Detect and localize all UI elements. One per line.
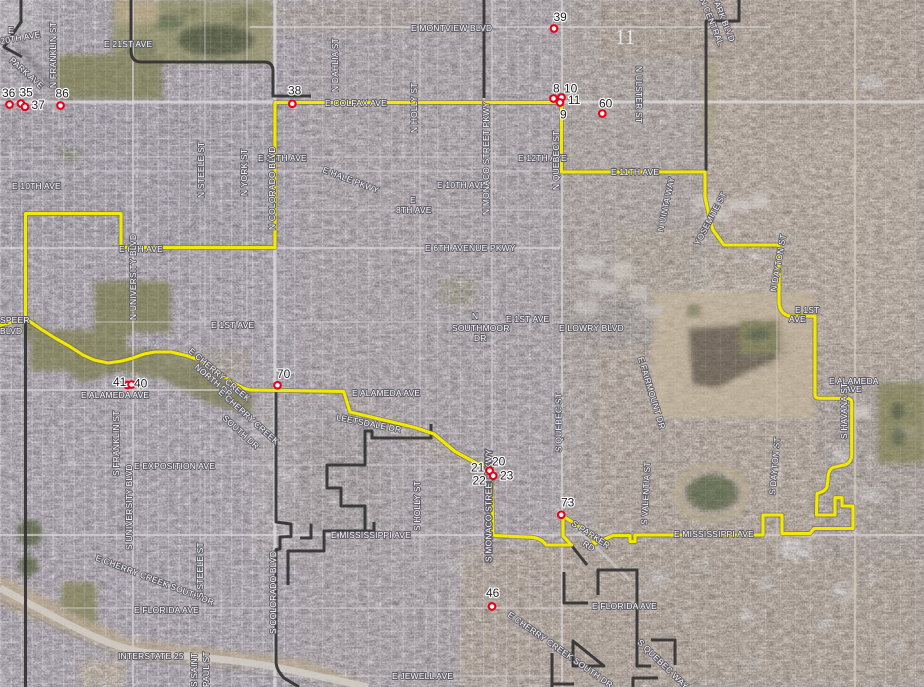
svg-text:E ALAMEDA AVE: E ALAMEDA AVE — [81, 390, 149, 400]
svg-text:73: 73 — [561, 496, 575, 510]
svg-text:AVE: AVE — [789, 314, 806, 324]
svg-text:E 1ST AVE: E 1ST AVE — [211, 320, 255, 330]
svg-text:DR: DR — [474, 333, 487, 343]
svg-text:BLVD: BLVD — [0, 326, 22, 336]
svg-text:N FRANKLIN ST: N FRANKLIN ST — [48, 22, 58, 88]
svg-text:E ALAMEDA AVE: E ALAMEDA AVE — [352, 388, 420, 398]
svg-text:9: 9 — [560, 108, 567, 122]
svg-text:E MONTVIEW BLVD: E MONTVIEW BLVD — [411, 23, 492, 33]
svg-text:86: 86 — [56, 87, 70, 101]
svg-text:E EXPOSITION AVE: E EXPOSITION AVE — [134, 461, 215, 471]
svg-text:70: 70 — [277, 367, 291, 381]
svg-text:S QUEBEC ST: S QUEBEC ST — [554, 393, 564, 452]
svg-text:N QUEBEC ST: N QUEBEC ST — [551, 130, 561, 190]
svg-text:S HAVANA ST: S HAVANA ST — [839, 383, 849, 439]
svg-text:E 12TH AVE: E 12TH AVE — [258, 153, 307, 163]
svg-text:N YORK ST: N YORK ST — [239, 149, 249, 196]
svg-text:E JEWELL AVE: E JEWELL AVE — [392, 671, 453, 681]
svg-text:22: 22 — [473, 474, 487, 488]
svg-text:S HOLLY ST: S HOLLY ST — [412, 481, 422, 531]
svg-text:N DAHLIA ST: N DAHLIA ST — [330, 38, 340, 92]
svg-text:E 1ST AVE: E 1ST AVE — [506, 314, 550, 324]
svg-text:20: 20 — [492, 455, 506, 469]
svg-text:N: N — [472, 311, 478, 321]
svg-text:PAUL ST: PAUL ST — [201, 651, 211, 687]
svg-text:41: 41 — [113, 375, 127, 389]
svg-text:E 6TH AVE: E 6TH AVE — [119, 244, 163, 254]
svg-text:N STEELE ST: N STEELE ST — [196, 142, 206, 198]
svg-text:N UNIVERSITY BLVD: N UNIVERSITY BLVD — [128, 234, 138, 320]
svg-text:46: 46 — [486, 586, 500, 600]
svg-text:23: 23 — [500, 469, 514, 483]
svg-text:E LOWRY BLVD: E LOWRY BLVD — [559, 323, 624, 333]
svg-text:37: 37 — [32, 98, 46, 112]
svg-text:11: 11 — [615, 25, 635, 49]
svg-text:S FRANKLIN ST: S FRANKLIN ST — [111, 410, 121, 476]
svg-text:SOUTHMOOR: SOUTHMOOR — [452, 323, 510, 333]
svg-text:E COLFAX AVE: E COLFAX AVE — [325, 98, 387, 108]
svg-text:E 11TH AVE: E 11TH AVE — [611, 167, 659, 177]
svg-text:S SAINT: S SAINT — [189, 653, 199, 687]
svg-text:E 6TH AVENUE PKWY: E 6TH AVENUE PKWY — [425, 243, 516, 253]
svg-text:E: E — [410, 195, 416, 205]
svg-text:E MISSISSIPPI AVE: E MISSISSIPPI AVE — [674, 529, 754, 539]
svg-text:11: 11 — [568, 93, 581, 107]
svg-text:N COLORADO BLVD: N COLORADO BLVD — [267, 146, 277, 230]
svg-text:E FLORIDA AVE: E FLORIDA AVE — [592, 601, 657, 611]
svg-text:E 21ST AVE: E 21ST AVE — [104, 39, 152, 49]
svg-text:E 10TH AVE: E 10TH AVE — [12, 181, 61, 191]
svg-text:S STEELE ST: S STEELE ST — [195, 542, 205, 598]
svg-text:N ULSTER ST: N ULSTER ST — [634, 66, 644, 123]
svg-text:E FLORIDA AVE: E FLORIDA AVE — [134, 605, 199, 615]
svg-text:S COLORADO BLVD: S COLORADO BLVD — [268, 551, 278, 634]
svg-text:8: 8 — [553, 82, 560, 96]
svg-text:INTERSTATE 25: INTERSTATE 25 — [118, 651, 184, 661]
svg-text:38: 38 — [288, 84, 302, 98]
svg-text:8TH AVE: 8TH AVE — [396, 205, 432, 215]
svg-text:S UNIVERSITY BLVD: S UNIVERSITY BLVD — [124, 464, 134, 550]
svg-text:E 10TH AVE: E 10TH AVE — [437, 180, 486, 190]
svg-text:SPEER: SPEER — [0, 315, 30, 325]
svg-text:40: 40 — [134, 377, 148, 391]
svg-text:60: 60 — [599, 97, 613, 111]
svg-text:N HOLLY ST: N HOLLY ST — [409, 82, 419, 133]
svg-text:N MONACO STREET PKWY: N MONACO STREET PKWY — [481, 102, 491, 215]
svg-text:21: 21 — [471, 461, 485, 475]
svg-text:36: 36 — [2, 86, 16, 100]
svg-text:39: 39 — [554, 10, 568, 24]
svg-text:E MISSISSIPPI AVE: E MISSISSIPPI AVE — [331, 530, 411, 540]
